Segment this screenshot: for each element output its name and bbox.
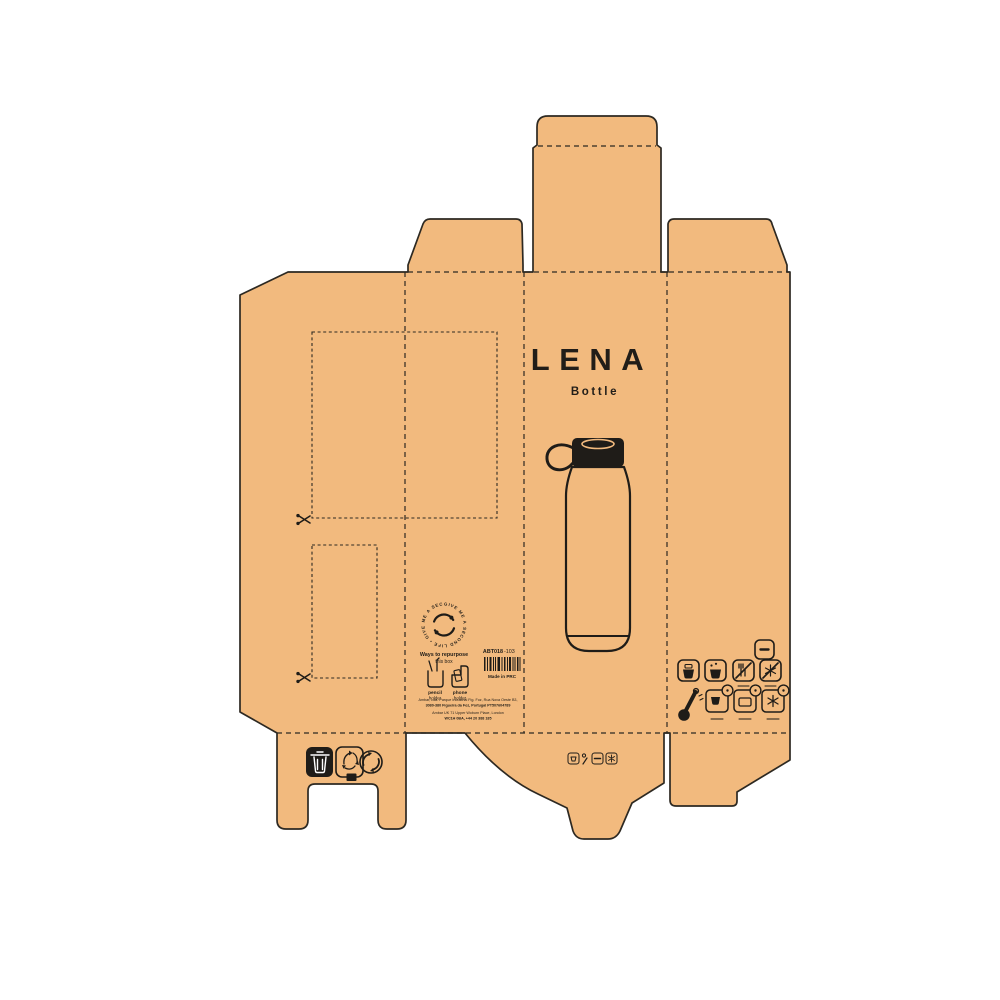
flap-bottom-lock (465, 733, 664, 839)
dieline-board (240, 116, 790, 839)
sku-suffix: -103 (504, 649, 515, 655)
address-line-1: Ambar, Lda. Parque Industrial Fig. Foz, … (419, 698, 518, 702)
address-line-3: Ambar UK 71 Upper Woburn Place, London (432, 711, 504, 715)
waste-bin-icon (306, 747, 333, 777)
flap-top-right (668, 219, 787, 272)
bottle-cap (572, 438, 624, 467)
paper-code: 21 (349, 776, 355, 782)
flap-bottom-right (670, 733, 790, 806)
origin-label: Made in PRC (488, 674, 517, 679)
product-subtitle: Bottle (571, 386, 619, 398)
product-title: LENA (531, 342, 653, 377)
packaging-dieline: LENA Bottle GIVE ME A SECOND LIFE • GIVE… (0, 0, 1000, 1000)
dieline-drawing: LENA Bottle GIVE ME A SECOND LIFE • GIVE… (0, 0, 1000, 1000)
repurpose-subheading: this box (435, 659, 453, 665)
repurpose-heading: Ways to repurpose (420, 652, 468, 658)
sku-prefix: ABT018 (483, 649, 503, 655)
flap-lid (533, 116, 661, 272)
address-line-2: 3080-380 Figueira da Foz, Portugal PT507… (426, 704, 511, 708)
address-line-4: WC1H 0BA, +44 20 388 185 (444, 717, 491, 721)
flap-top-left (408, 219, 523, 272)
